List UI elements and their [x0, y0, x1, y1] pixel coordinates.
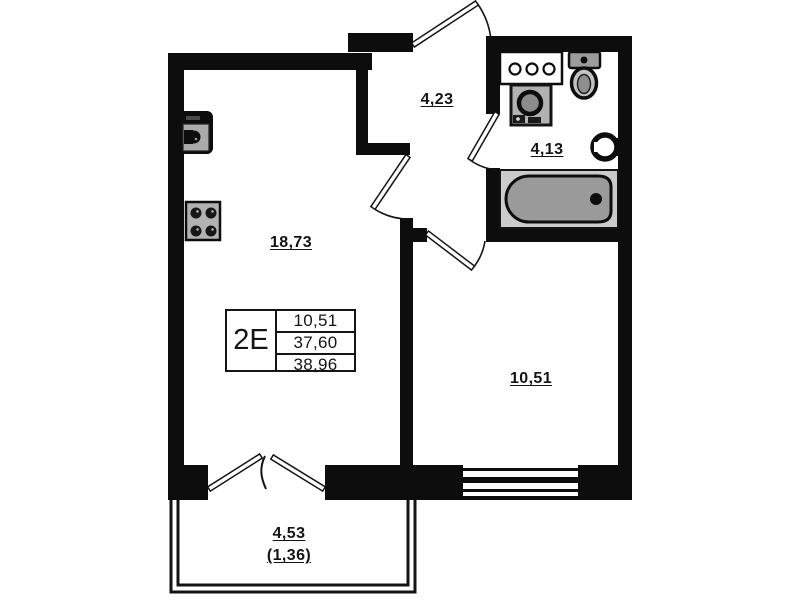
- washing-machine-icon: [511, 85, 551, 125]
- room-label-balcony: 4,53: [273, 525, 306, 543]
- bathroom-door-icon: [468, 112, 499, 170]
- vanity-hole: [527, 64, 538, 75]
- dryer-ring-gap: [594, 142, 599, 152]
- wall-hall-bath-upper: [486, 38, 500, 114]
- window-bar: [463, 496, 578, 500]
- floor-plan-drawing: [0, 0, 799, 600]
- balcony-outline: [171, 500, 415, 592]
- toilet-tank-button: [581, 57, 588, 64]
- entry-door-icon: [412, 1, 491, 47]
- window-bar: [463, 468, 578, 471]
- unit-total-area: 38,96: [277, 353, 354, 375]
- room-label-living-kitchen: 18,73: [270, 234, 312, 252]
- wall-entry-block: [348, 33, 413, 52]
- bedroom-door-arc: [473, 241, 485, 268]
- wall-living-bedroom: [400, 218, 413, 468]
- wall-bathroom-bottom: [486, 228, 632, 242]
- wall-bottom-living-right: [325, 465, 413, 500]
- doors: [208, 1, 500, 491]
- bedroom-door-icon: [425, 231, 485, 270]
- wall-top-bathroom: [486, 36, 632, 52]
- stove-burner: [191, 226, 202, 237]
- stove-burner: [206, 226, 217, 237]
- towel-dryer-icon: [593, 135, 620, 159]
- room-label-bathroom: 4,13: [531, 141, 564, 159]
- wall-top-living: [168, 53, 372, 70]
- balcony-door-right-leaf: [271, 455, 326, 491]
- bathtub-drain: [590, 193, 602, 205]
- living-door-arc: [373, 208, 410, 219]
- unit-type-cell: 2E: [227, 311, 277, 370]
- stove-burner-dot: [196, 210, 198, 212]
- window-bar: [463, 477, 578, 483]
- french-balcony-door-icon: [208, 454, 326, 491]
- living-door-icon: [371, 155, 410, 219]
- balcony-door-meeting-curve: [261, 456, 266, 489]
- sink-drain-dot: [195, 138, 198, 141]
- vanity-hole: [544, 64, 555, 75]
- stove-burner: [206, 208, 217, 219]
- window-bar: [463, 489, 578, 492]
- bathtub-icon: [500, 170, 618, 228]
- toilet-bowl-inner: [578, 75, 591, 94]
- living-door-leaf: [371, 155, 410, 210]
- wall-hall-left-upper: [356, 53, 368, 155]
- washer-drum: [519, 92, 541, 114]
- room-label-hallway: 4,23: [421, 91, 454, 109]
- unit-area-no-balcony: 37,60: [277, 331, 354, 353]
- bedroom-door-leaf: [425, 231, 474, 270]
- stove-burner-dot: [211, 228, 213, 230]
- washer-dot: [516, 117, 520, 121]
- room-label-balcony-weighted: (1,36): [267, 547, 311, 565]
- balcony-outer-line: [171, 500, 415, 592]
- toilet-icon: [569, 52, 600, 98]
- vanity-hole: [510, 64, 521, 75]
- washer-detail: [528, 117, 541, 123]
- wall-right: [618, 36, 632, 500]
- wall-hall-stub: [356, 143, 410, 155]
- room-label-bedroom: 10,51: [510, 370, 552, 388]
- stove-icon: [186, 202, 220, 240]
- entry-door-arc: [477, 3, 491, 40]
- unit-living-area: 10,51: [277, 311, 354, 331]
- window-bedroom: [463, 465, 578, 500]
- wall-hall-bath-lower: [486, 168, 500, 230]
- stove-burner-dot: [211, 210, 213, 212]
- floor-plan-page: 4,23 4,13 18,73 10,51 4,53 (1,36) 2E 10,…: [0, 0, 799, 600]
- stove-burner: [191, 208, 202, 219]
- vanity-basin-icon: [500, 52, 562, 84]
- sink-faucet: [188, 131, 201, 144]
- balcony-door-left-leaf: [208, 454, 263, 491]
- sink-brand-mark: [186, 116, 200, 120]
- bathroom-door-leaf: [468, 112, 499, 161]
- kitchen-sink-icon: [179, 111, 213, 154]
- entry-door-leaf: [412, 1, 479, 47]
- wall-bottom-living-left: [168, 465, 208, 500]
- walls: [168, 33, 632, 500]
- unit-info-box: 2E 10,51 37,60 38,96: [225, 309, 356, 372]
- stove-burner-dot: [196, 228, 198, 230]
- unit-areas-column: 10,51 37,60 38,96: [277, 311, 354, 370]
